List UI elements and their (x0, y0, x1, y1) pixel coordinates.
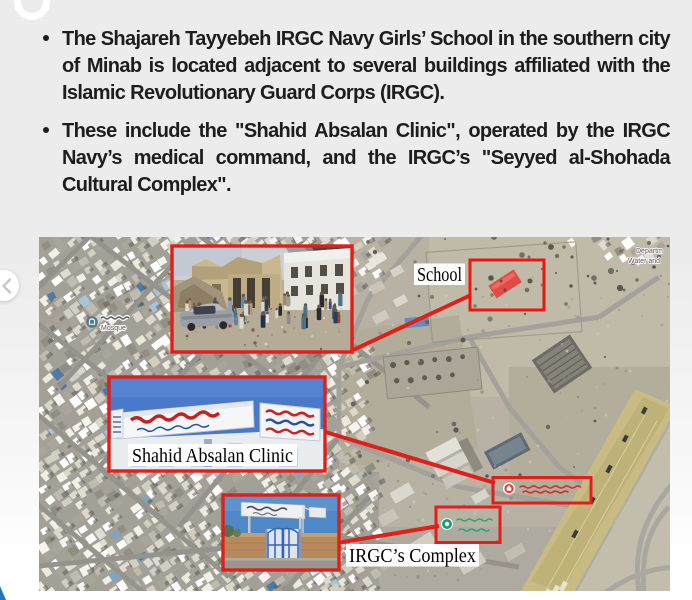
svg-text:School: School (417, 264, 462, 286)
svg-text:Departm: Departm (636, 248, 663, 255)
svg-text:Shahid Absalan Clinic: Shahid Absalan Clinic (132, 445, 293, 467)
svg-text:IRGC’s Complex: IRGC’s Complex (349, 545, 476, 567)
svg-text:Mosque: Mosque (101, 325, 126, 332)
svg-text:Water and: Water and (628, 258, 660, 265)
